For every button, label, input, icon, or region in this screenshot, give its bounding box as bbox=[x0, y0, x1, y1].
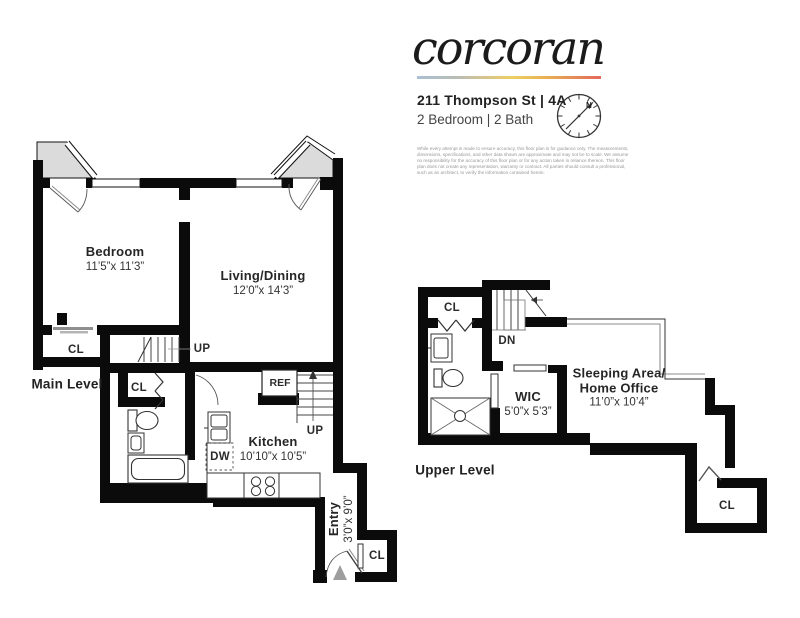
door-bay-right-icon bbox=[289, 177, 321, 210]
floor-plan-drawing: N bbox=[0, 0, 800, 618]
shower-icon bbox=[431, 398, 490, 435]
living-name: Living/Dining bbox=[221, 269, 306, 284]
listing-beds-baths: 2 Bedroom | 2 Bath bbox=[417, 112, 533, 127]
room-label-wic: WIC 5’0”x 5’3” bbox=[504, 390, 551, 419]
room-label-sleeping-area: Sleeping Area/ Home Office 11’0”x 10’4” bbox=[573, 367, 666, 410]
disclaimer-text: While every attempt is made to ensure ac… bbox=[417, 146, 631, 176]
sleeping-dims: 11’0”x 10’4” bbox=[573, 396, 666, 410]
stairs-label-up-hall: UP bbox=[194, 343, 211, 355]
wic-dims: 5’0”x 5’3” bbox=[504, 404, 551, 418]
window-bedroom-icon bbox=[92, 179, 140, 187]
closet-label-upper-right: CL bbox=[719, 500, 735, 512]
room-label-entry: Entry 3’0”x 9’0” bbox=[327, 495, 356, 542]
room-label-bedroom: Bedroom 11’5”x 11’3” bbox=[86, 245, 144, 274]
kitchen-name: Kitchen bbox=[240, 435, 306, 450]
stairs-label-up-kitchen: UP bbox=[307, 425, 324, 437]
door-leaf-entry-closet-icon bbox=[358, 544, 363, 568]
bay-window-right-icon bbox=[271, 136, 335, 179]
sleeping-name-line1: Sleeping Area/ bbox=[573, 367, 666, 382]
closet-label-hall: CL bbox=[131, 382, 147, 394]
window-living-icon bbox=[236, 179, 282, 187]
entry-arrow-icon bbox=[333, 565, 347, 580]
room-label-kitchen: Kitchen 10’10”x 10’5” bbox=[240, 435, 306, 464]
door-bay-left-icon bbox=[50, 186, 87, 212]
entry-name: Entry bbox=[327, 495, 342, 542]
compass-north-label: N bbox=[586, 101, 592, 110]
toilet-upper-icon bbox=[434, 369, 463, 387]
closet-shelf-icon bbox=[53, 327, 93, 334]
closet-label-upper-top: CL bbox=[444, 302, 460, 314]
bathroom-sink-icon bbox=[128, 433, 144, 453]
door-kitchen-icon bbox=[196, 375, 218, 405]
living-dims: 12’0”x 14’3” bbox=[221, 283, 306, 297]
bathroom-sink-upper-icon bbox=[428, 334, 452, 362]
bay-window-left-icon bbox=[37, 141, 97, 179]
closet-bifold-upper-icon bbox=[438, 320, 474, 331]
closet-label-bedroom: CL bbox=[68, 344, 84, 356]
dishwasher-label: DW bbox=[210, 451, 230, 463]
corcoran-logo: corcoran bbox=[412, 24, 604, 72]
entry-dims: 3’0”x 9’0” bbox=[341, 495, 355, 542]
sleeping-name-line2: Home Office bbox=[573, 381, 666, 396]
room-label-living-dining: Living/Dining 12’0”x 14’3” bbox=[221, 269, 306, 298]
stairs-label-down: DN bbox=[498, 335, 515, 347]
closet-label-entry: CL bbox=[369, 550, 385, 562]
bathtub-icon bbox=[128, 455, 188, 483]
main-level-title: Main Level bbox=[31, 377, 102, 392]
stairs-up-kitchen-icon bbox=[297, 370, 333, 423]
bedroom-dims: 11’5”x 11’3” bbox=[86, 259, 144, 273]
brand-gradient-bar bbox=[417, 76, 601, 79]
refrigerator-label: REF bbox=[270, 377, 291, 389]
floor-plan-page: N corcoran 211 Thompson St | 4A 2 Bedroo… bbox=[0, 0, 800, 618]
bedroom-name: Bedroom bbox=[86, 245, 144, 260]
listing-address: 211 Thompson St | 4A bbox=[417, 92, 567, 108]
kitchen-dims: 10’10”x 10’5” bbox=[240, 449, 306, 463]
wic-name: WIC bbox=[504, 390, 551, 405]
toilet-icon bbox=[128, 410, 158, 431]
door-leaf-bathroom-upper-icon bbox=[491, 374, 498, 408]
upper-level-title: Upper Level bbox=[415, 463, 494, 478]
kitchen-sink-icon bbox=[204, 412, 230, 443]
door-leaf-wic-icon bbox=[514, 365, 546, 371]
